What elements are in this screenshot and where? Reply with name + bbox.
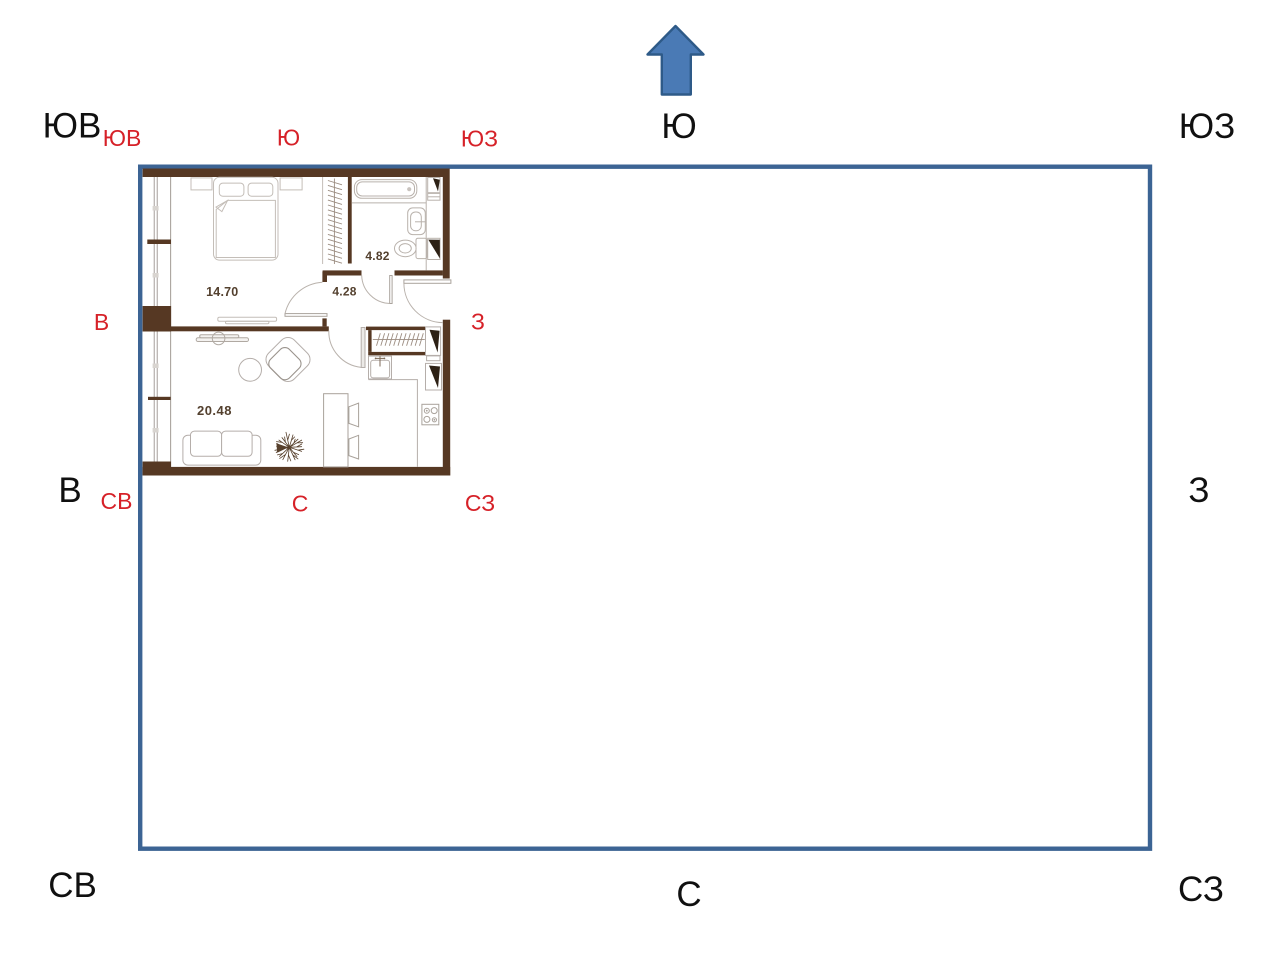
svg-text:С: С [292, 491, 309, 517]
svg-text:Ю: Ю [277, 125, 300, 151]
svg-text:СВ: СВ [101, 488, 133, 514]
svg-text:14.70: 14.70 [206, 285, 238, 299]
svg-text:СЗ: СЗ [465, 490, 495, 516]
svg-text:ЮЗ: ЮЗ [461, 126, 498, 152]
svg-text:Ю: Ю [661, 107, 696, 146]
svg-text:ЮЗ: ЮЗ [1179, 107, 1236, 146]
svg-text:С: С [676, 875, 701, 914]
svg-text:ЮВ: ЮВ [103, 125, 142, 151]
svg-text:СЗ: СЗ [1178, 870, 1224, 909]
svg-text:З: З [1188, 471, 1209, 510]
svg-text:В: В [94, 309, 109, 335]
svg-text:В: В [58, 471, 81, 510]
svg-text:СВ: СВ [48, 866, 97, 905]
svg-text:ЮВ: ЮВ [43, 107, 102, 146]
svg-text:4.28: 4.28 [332, 285, 356, 299]
svg-text:З: З [471, 309, 485, 335]
svg-text:20.48: 20.48 [197, 403, 232, 418]
svg-text:4.82: 4.82 [365, 249, 389, 263]
